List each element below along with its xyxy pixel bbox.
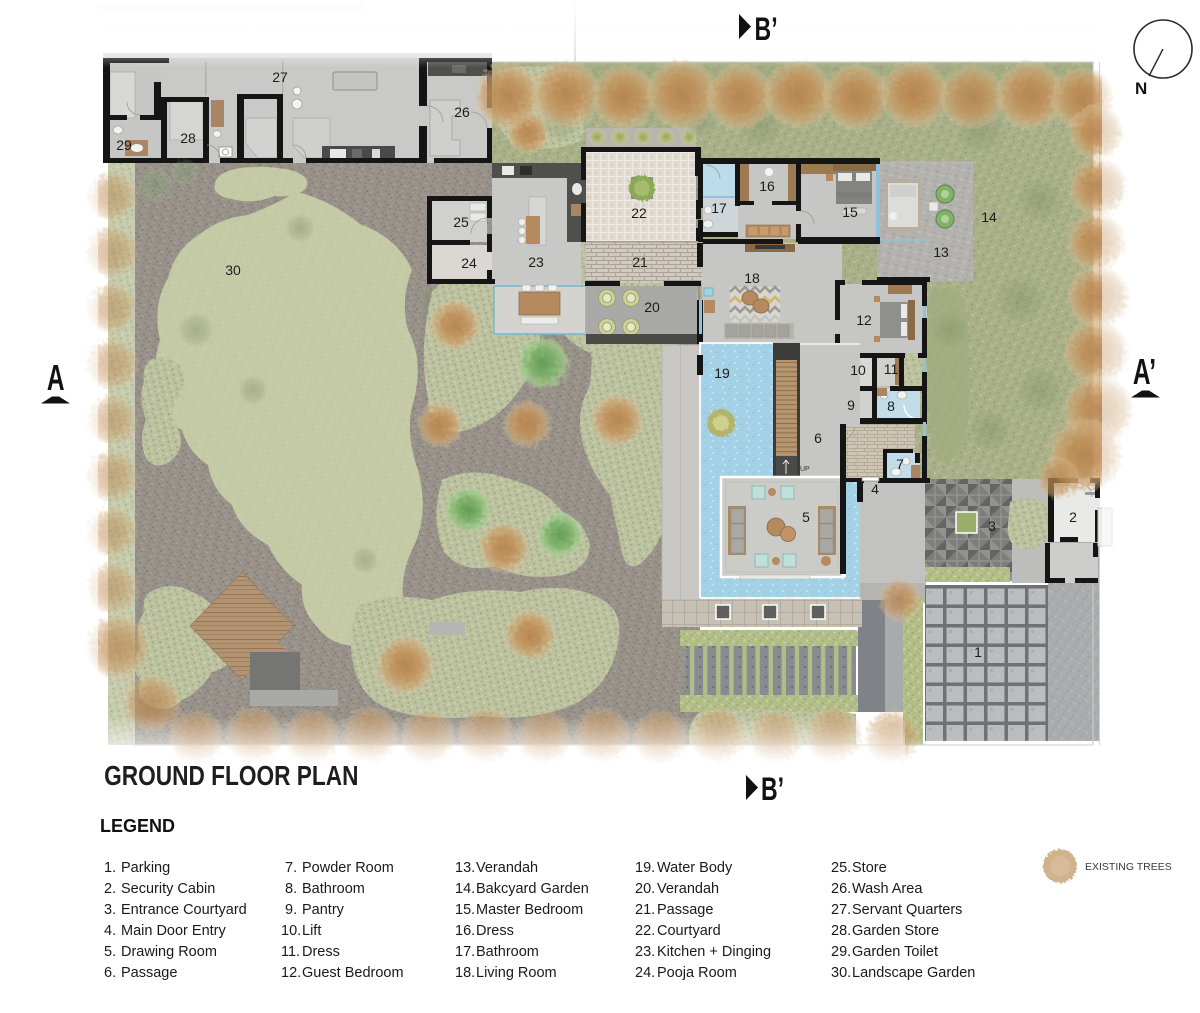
svg-text:EXISTING TREES: EXISTING TREES bbox=[1085, 861, 1172, 873]
svg-text:20: 20 bbox=[644, 299, 660, 315]
svg-text:22.: 22. bbox=[635, 923, 655, 939]
svg-text:Entrance Courtyard: Entrance Courtyard bbox=[121, 902, 247, 918]
svg-text:Master Bedroom: Master Bedroom bbox=[476, 902, 583, 918]
svg-text:25: 25 bbox=[453, 214, 469, 230]
svg-text:10: 10 bbox=[850, 362, 866, 378]
svg-text:7.: 7. bbox=[285, 860, 297, 876]
svg-text:A’: A’ bbox=[1133, 351, 1156, 392]
svg-text:16: 16 bbox=[759, 178, 775, 194]
svg-text:Wash Area: Wash Area bbox=[852, 881, 923, 897]
svg-text:5.: 5. bbox=[104, 944, 116, 960]
svg-text:23.: 23. bbox=[635, 944, 655, 960]
svg-text:Powder Room: Powder Room bbox=[302, 860, 394, 876]
svg-text:1.: 1. bbox=[104, 860, 116, 876]
svg-text:26.: 26. bbox=[831, 881, 851, 897]
svg-text:Kitchen + Dinging: Kitchen + Dinging bbox=[657, 944, 771, 960]
svg-text:Garden Store: Garden Store bbox=[852, 923, 939, 939]
svg-text:15.: 15. bbox=[455, 902, 475, 918]
svg-text:15: 15 bbox=[842, 204, 858, 220]
svg-text:GROUND FLOOR PLAN: GROUND FLOOR PLAN bbox=[104, 761, 358, 792]
svg-text:13.: 13. bbox=[455, 860, 475, 876]
svg-text:Living Room: Living Room bbox=[476, 965, 557, 981]
svg-text:UP: UP bbox=[800, 466, 810, 473]
svg-text:27: 27 bbox=[272, 69, 288, 85]
svg-text:24.: 24. bbox=[635, 965, 655, 981]
svg-text:6.: 6. bbox=[104, 965, 116, 981]
svg-text:4: 4 bbox=[871, 481, 879, 497]
svg-text:Pantry: Pantry bbox=[302, 902, 345, 918]
svg-text:21: 21 bbox=[632, 254, 648, 270]
svg-text:13: 13 bbox=[933, 244, 949, 260]
svg-text:3.: 3. bbox=[104, 902, 116, 918]
svg-text:Passage: Passage bbox=[121, 965, 177, 981]
svg-text:14.: 14. bbox=[455, 881, 475, 897]
svg-text:Parking: Parking bbox=[121, 860, 170, 876]
svg-text:Drawing Room: Drawing Room bbox=[121, 944, 217, 960]
svg-text:27.: 27. bbox=[831, 902, 851, 918]
svg-text:24: 24 bbox=[461, 255, 477, 271]
svg-text:19: 19 bbox=[714, 365, 730, 381]
svg-text:Bakcyard Garden: Bakcyard Garden bbox=[476, 881, 589, 897]
svg-text:29: 29 bbox=[116, 137, 132, 153]
svg-text:12.: 12. bbox=[281, 965, 301, 981]
svg-text:20.: 20. bbox=[635, 881, 655, 897]
svg-text:2: 2 bbox=[1069, 509, 1077, 525]
svg-text:19.: 19. bbox=[635, 860, 655, 876]
svg-text:Verandah: Verandah bbox=[476, 860, 538, 876]
svg-text:8.: 8. bbox=[285, 881, 297, 897]
svg-text:17: 17 bbox=[711, 200, 727, 216]
svg-text:9.: 9. bbox=[285, 902, 297, 918]
svg-text:30.: 30. bbox=[831, 965, 851, 981]
svg-text:18.: 18. bbox=[455, 965, 475, 981]
svg-text:Water Body: Water Body bbox=[657, 860, 733, 876]
svg-text:29.: 29. bbox=[831, 944, 851, 960]
svg-text:26: 26 bbox=[454, 104, 470, 120]
svg-text:22: 22 bbox=[631, 205, 647, 221]
svg-text:A: A bbox=[47, 357, 65, 398]
svg-text:1: 1 bbox=[974, 644, 982, 660]
svg-text:18: 18 bbox=[744, 270, 760, 286]
svg-text:11.: 11. bbox=[281, 944, 300, 960]
svg-text:Guest Bedroom: Guest Bedroom bbox=[302, 965, 404, 981]
svg-text:Store: Store bbox=[852, 860, 887, 876]
svg-text:8: 8 bbox=[887, 398, 895, 414]
svg-text:6: 6 bbox=[814, 430, 822, 446]
svg-text:21.: 21. bbox=[635, 902, 655, 918]
svg-text:9: 9 bbox=[847, 397, 855, 413]
svg-text:Bathroom: Bathroom bbox=[302, 881, 365, 897]
svg-text:28: 28 bbox=[180, 130, 196, 146]
svg-text:Passage: Passage bbox=[657, 902, 713, 918]
svg-text:14: 14 bbox=[981, 209, 997, 225]
svg-text:Pooja Room: Pooja Room bbox=[657, 965, 737, 981]
svg-text:23: 23 bbox=[528, 254, 544, 270]
svg-text:LEGEND: LEGEND bbox=[100, 816, 175, 836]
svg-text:Garden Toilet: Garden Toilet bbox=[852, 944, 938, 960]
svg-text:Servant Quarters: Servant Quarters bbox=[852, 902, 962, 918]
svg-text:Lift: Lift bbox=[302, 923, 321, 939]
svg-text:Dress: Dress bbox=[302, 944, 340, 960]
svg-text:11: 11 bbox=[884, 361, 899, 377]
svg-text:12: 12 bbox=[856, 312, 872, 328]
svg-text:4.: 4. bbox=[104, 923, 116, 939]
svg-text:17.: 17. bbox=[455, 944, 475, 960]
svg-text:Landscape Garden: Landscape Garden bbox=[852, 965, 975, 981]
svg-text:Courtyard: Courtyard bbox=[657, 923, 721, 939]
svg-text:B’: B’ bbox=[755, 11, 778, 47]
svg-text:Verandah: Verandah bbox=[657, 881, 719, 897]
svg-text:30: 30 bbox=[225, 262, 241, 278]
svg-text:7: 7 bbox=[896, 456, 904, 472]
svg-text:2.: 2. bbox=[104, 881, 116, 897]
svg-text:Dress: Dress bbox=[476, 923, 514, 939]
svg-text:B’: B’ bbox=[761, 771, 784, 807]
svg-text:16.: 16. bbox=[455, 923, 475, 939]
svg-text:3: 3 bbox=[988, 518, 996, 534]
svg-text:10.: 10. bbox=[281, 923, 301, 939]
svg-text:Main Door Entry: Main Door Entry bbox=[121, 923, 227, 939]
svg-text:25.: 25. bbox=[831, 860, 851, 876]
svg-text:5: 5 bbox=[802, 509, 810, 525]
svg-text:N: N bbox=[1135, 79, 1147, 98]
svg-text:Security Cabin: Security Cabin bbox=[121, 881, 215, 897]
svg-text:28.: 28. bbox=[831, 923, 851, 939]
svg-text:Bathroom: Bathroom bbox=[476, 944, 539, 960]
